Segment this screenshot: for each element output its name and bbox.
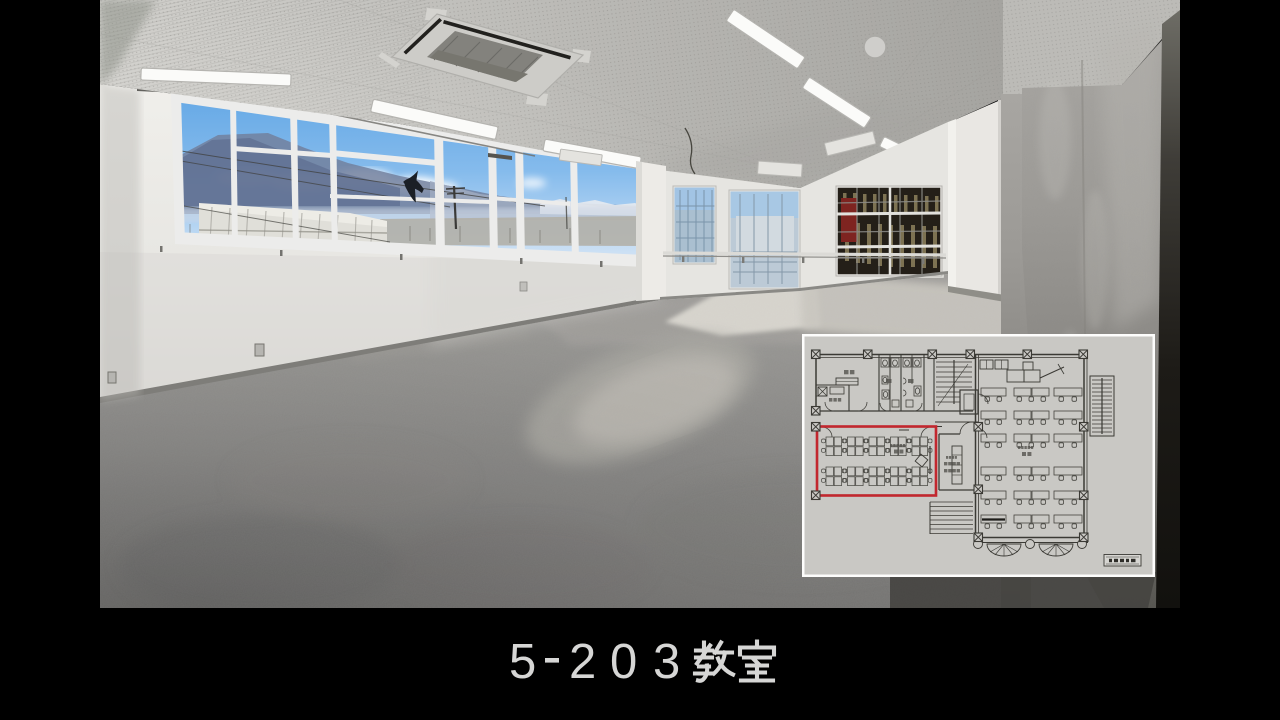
- svg-text:0: 0: [610, 635, 637, 689]
- svg-text:3: 3: [653, 635, 680, 689]
- svg-text:2: 2: [569, 635, 596, 689]
- svg-text:5: 5: [509, 635, 536, 689]
